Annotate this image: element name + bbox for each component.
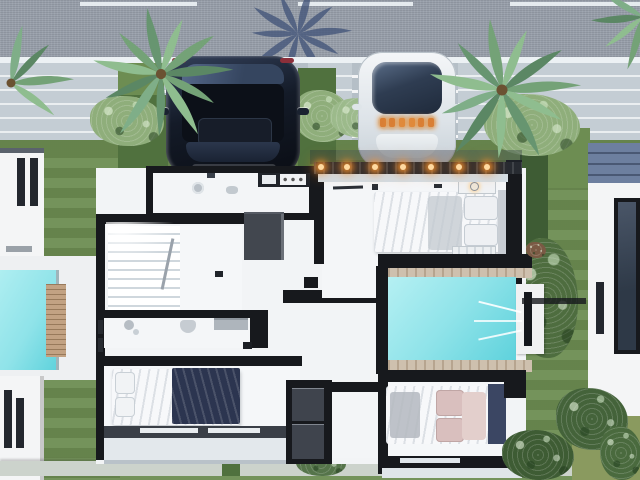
- palm-tree-edge: [0, 8, 86, 158]
- bath-north-wall: [104, 310, 266, 318]
- string-light: [344, 164, 350, 170]
- terrace-north-wall: [378, 254, 532, 268]
- appliance: [262, 175, 276, 184]
- side-table: [304, 277, 318, 288]
- neighbor-window-slit: [596, 282, 604, 334]
- suv-taillight: [280, 58, 294, 63]
- corner-post: [504, 372, 526, 398]
- palm-tree-corner: [578, 0, 640, 82]
- tree-canopy: [502, 430, 574, 480]
- shower-drain: [133, 329, 139, 335]
- bedroom-left-window-wall: [104, 426, 302, 438]
- amber-light: [380, 118, 386, 127]
- string-light: [318, 164, 324, 170]
- blush-pillow: [436, 418, 464, 442]
- wardrobe-door: [292, 424, 324, 459]
- master-west-wall: [314, 172, 324, 264]
- waterfall-stream: [474, 320, 522, 322]
- sink: [226, 186, 238, 194]
- door-mark: [98, 338, 103, 352]
- wood-deck-strip: [46, 284, 66, 357]
- pillow: [464, 196, 498, 220]
- bath-east-wall: [250, 310, 268, 348]
- balcony-left: [104, 438, 302, 464]
- string-light: [372, 164, 378, 170]
- shower-head: [124, 320, 134, 330]
- navy-blanket: [172, 368, 240, 424]
- floor-item: [215, 271, 223, 277]
- window-slit: [140, 428, 198, 433]
- neighbor-window: [30, 158, 38, 206]
- window-slit: [400, 458, 460, 463]
- door-mark: [98, 320, 103, 334]
- garden-fence: [522, 298, 586, 304]
- blush-pillow: [436, 390, 464, 416]
- window-slit: [208, 428, 260, 433]
- pillow: [464, 224, 498, 246]
- amber-light: [399, 118, 405, 127]
- balcony-right: [382, 468, 522, 478]
- pillow: [115, 397, 135, 417]
- gray-throw: [428, 196, 462, 250]
- pillow: [115, 372, 135, 394]
- villa-pool: [388, 277, 516, 361]
- neighbor-wall-detail: [6, 246, 32, 252]
- headboard: [498, 190, 506, 254]
- bedroom-left-north-wall: [104, 356, 302, 366]
- table-lamp: [470, 182, 479, 191]
- aerial-floorplan-render: [0, 0, 640, 480]
- neighbor-roof-blue: [588, 143, 640, 183]
- neighbor-window-glass: [618, 202, 636, 350]
- closet-block: [244, 212, 284, 260]
- cooktop: [280, 174, 306, 185]
- palm-tree: [410, 0, 594, 182]
- neighbor-window: [16, 398, 24, 448]
- suv-mirror: [297, 108, 309, 115]
- planter: [526, 242, 546, 258]
- window-light: [106, 222, 176, 262]
- wall-sconce: [372, 184, 378, 190]
- corridor-floor: [332, 392, 378, 458]
- car-mirror: [352, 104, 362, 110]
- wall-sconce: [434, 184, 442, 188]
- wardrobe-door: [292, 388, 324, 421]
- gray-blanket: [390, 392, 420, 438]
- string-light: [400, 164, 406, 170]
- palm-tree: [75, 0, 247, 160]
- amber-light: [389, 118, 395, 127]
- neighbor-window: [17, 158, 25, 206]
- pool-west-wall: [376, 266, 388, 374]
- floor-item: [243, 342, 252, 349]
- ceiling-fan: [192, 182, 204, 194]
- vanity: [214, 318, 248, 330]
- wall-fixture: [207, 173, 215, 178]
- tree-canopy: [600, 426, 640, 480]
- neighbor-window: [4, 390, 12, 448]
- pillow-light: [462, 392, 486, 440]
